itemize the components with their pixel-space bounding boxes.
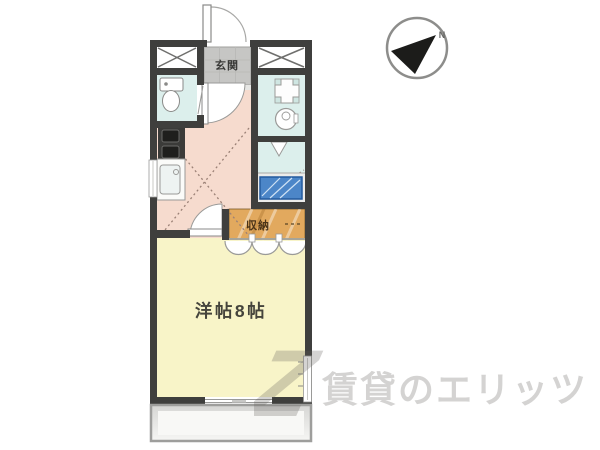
kitchen-sink-counter <box>157 159 185 200</box>
floorplan-image: N 玄関 収納 洋帖8帖 Z 賃貸のエリッツ <box>0 0 600 450</box>
bath-fixture-icon <box>275 79 299 103</box>
kitchen-window <box>149 160 157 197</box>
void-x-right <box>259 48 304 67</box>
void-x-left <box>158 48 196 67</box>
balcony <box>151 405 311 441</box>
stove-icon <box>158 126 185 159</box>
entrance-label: 玄関 <box>215 58 239 72</box>
entrance-door-swing <box>203 5 246 42</box>
main-room-label: 洋帖8帖 <box>195 301 267 321</box>
washing-machine-pan <box>256 173 306 203</box>
floorplan-drawing: N 玄関 収納 洋帖8帖 <box>0 0 600 450</box>
compass: N <box>387 18 447 78</box>
compass-north-label: N <box>439 30 446 40</box>
storage-label: 収納 <box>246 218 270 232</box>
